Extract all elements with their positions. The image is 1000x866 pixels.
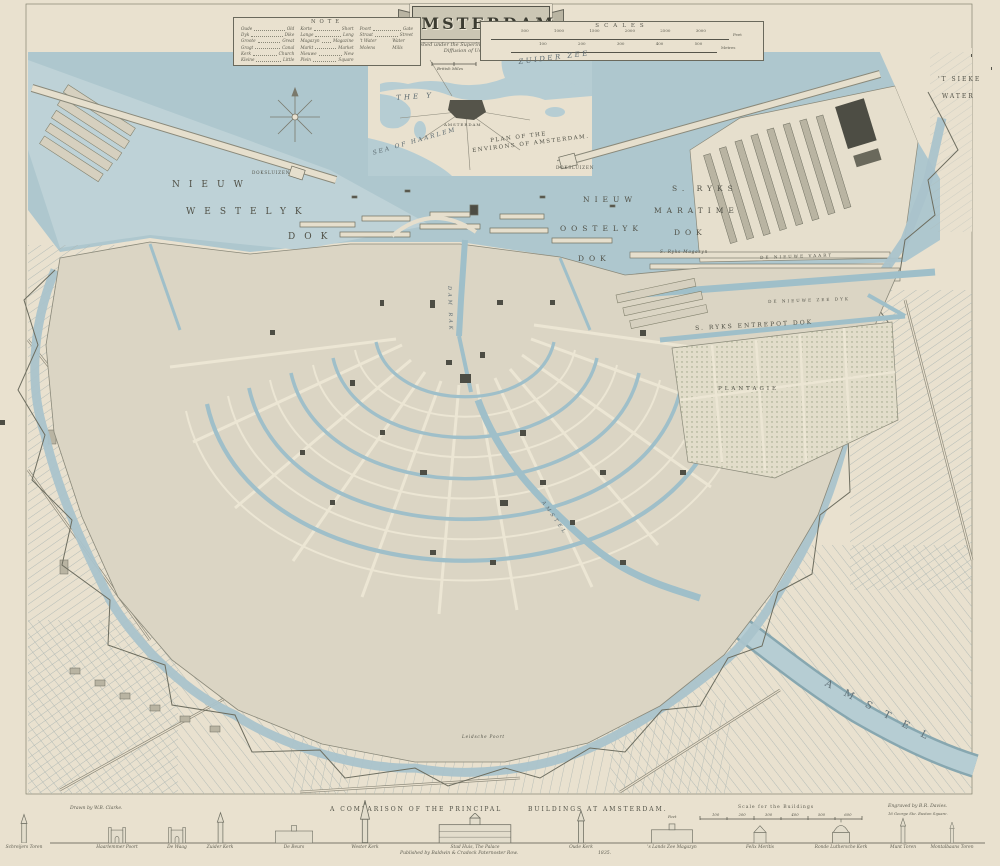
comparison-title-2: BUILDINGS AT AMSTERDAM. <box>528 806 668 813</box>
credit-year: 1835. <box>598 851 611 856</box>
label-sieke-water-1: 'T SIEKE <box>938 76 981 83</box>
label-ryks-magazyn: S. Ryks Magazyn <box>660 249 708 254</box>
building-figure-4 <box>212 811 229 843</box>
credit-engraver-address: 16 George Ste. Euston Square. <box>888 811 948 816</box>
credit-published: Published by Baldwin & Cradock Paternost… <box>400 851 518 856</box>
label-nieuw-oostelyk-2: OOSTELYK <box>560 224 643 233</box>
building-figure-10 <box>750 823 770 843</box>
label-plantagie: PLANTAGIE <box>718 386 779 392</box>
building-figure-6 <box>356 799 374 843</box>
label-doksluizen-west: DOKSLUIZEN <box>252 170 290 175</box>
building-figure-11 <box>828 817 854 843</box>
building-figure-1 <box>16 813 32 843</box>
building-figure-8 <box>572 809 590 843</box>
building-figure-5 <box>272 823 316 843</box>
credit-drawn-by: Drawn by W.B. Clarke. <box>70 806 123 811</box>
label-nieuw-westelyk-3: DOK <box>288 232 336 242</box>
map-sheet: AMSTERDAM Published under the Superinten… <box>0 0 1000 866</box>
label-s-ryks-1: S. RYKS <box>672 184 738 193</box>
label-doksluizen-east: DOKSLUIZEN <box>556 165 594 170</box>
label-nieuw-westelyk-2: WESTELYK <box>186 207 311 217</box>
scale1-numbers: 500 1000 1500 2000 2500 3000 <box>521 28 706 33</box>
building-figure-7 <box>430 813 520 843</box>
buildings-scale-unit: Feet <box>668 814 676 819</box>
label-s-ryks-3: DOK <box>674 228 707 237</box>
building-figure-3 <box>166 821 188 843</box>
label-sieke-water-2: WATER <box>942 93 975 100</box>
building-figure-12 <box>896 817 910 843</box>
scales-box: SCALES 500 1000 1500 2000 2500 3000 Feet… <box>480 21 764 61</box>
building-figure-9 <box>648 821 696 843</box>
note-column-3: PoortGate StraatStreet 't Water MolensWa… <box>357 26 416 63</box>
inset-label-amsterdam: AMSTERDAM <box>444 122 482 127</box>
label-nieuw-westelyk-1: NIEUW <box>172 180 252 190</box>
building-figure-2 <box>106 821 128 843</box>
buildings-scale-label: Scale for the Buildings <box>738 805 814 810</box>
label-nieuw-oostelyk-1: NIEUW <box>583 195 637 204</box>
note-column-1: OudeOld DykDike GrooteGreat GragtCanal K… <box>238 26 297 63</box>
label-s-ryks-2: MARATIME <box>654 206 739 215</box>
credit-engraved-by: Engraved by B.R. Davies. <box>888 804 947 809</box>
label-nieuw-oostelyk-3: DOK <box>578 254 611 263</box>
scale2-numbers: 100 200 300 400 500 <box>539 41 702 46</box>
scale1-unit: Feet <box>733 32 742 37</box>
building-figure-13 <box>946 821 958 843</box>
note-box: NOTE OudeOld DykDike GrooteGreat GragtCa… <box>233 17 421 66</box>
label-leidsche-poort: Leidsche Poort <box>462 734 505 739</box>
scale2-unit: Metres <box>721 45 735 50</box>
inset-label-british-miles: British Miles <box>437 66 463 71</box>
note-column-2: KorteShort LangeLong MagazynMagazine Mar… <box>297 26 356 63</box>
